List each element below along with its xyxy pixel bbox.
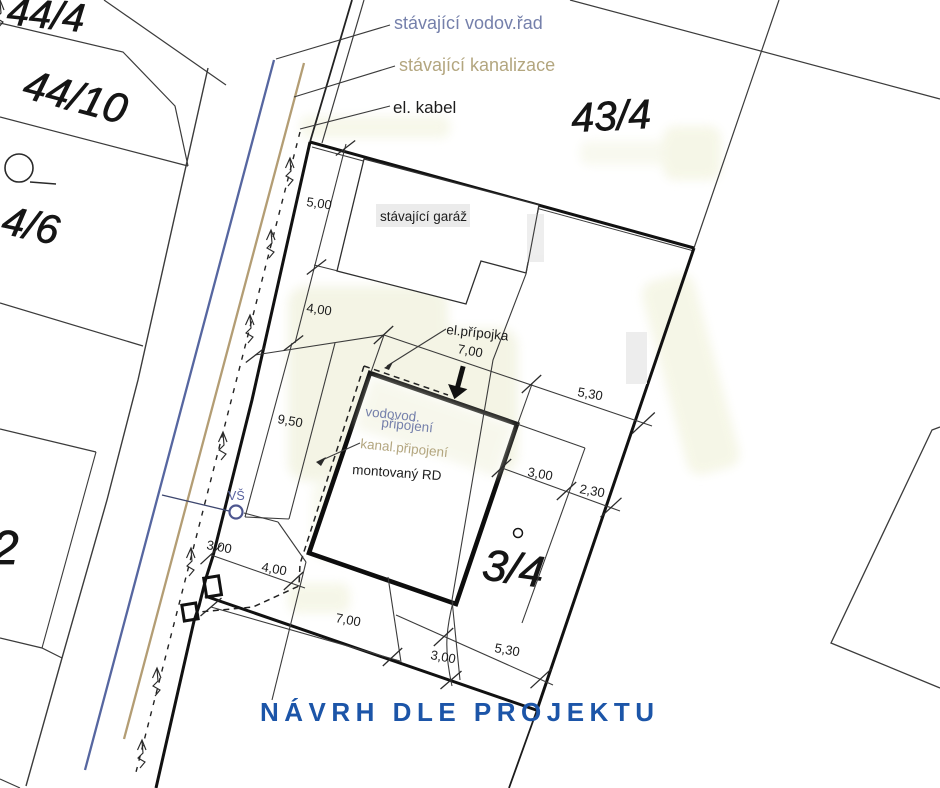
- svg-text:el. kabel: el. kabel: [393, 98, 456, 117]
- svg-text:stávající garáž: stávající garáž: [380, 209, 467, 224]
- svg-text:stávající kanalizace: stávající kanalizace: [399, 55, 555, 75]
- svg-text:NÁVRH DLE PROJEKTU: NÁVRH DLE PROJEKTU: [260, 697, 659, 727]
- svg-text:stávající vodov.řad: stávající vodov.řad: [394, 13, 543, 33]
- svg-text:3/4: 3/4: [480, 540, 547, 597]
- svg-text:VŠ: VŠ: [228, 488, 245, 503]
- svg-text:43/4: 43/4: [570, 91, 652, 141]
- svg-text:2: 2: [0, 522, 19, 575]
